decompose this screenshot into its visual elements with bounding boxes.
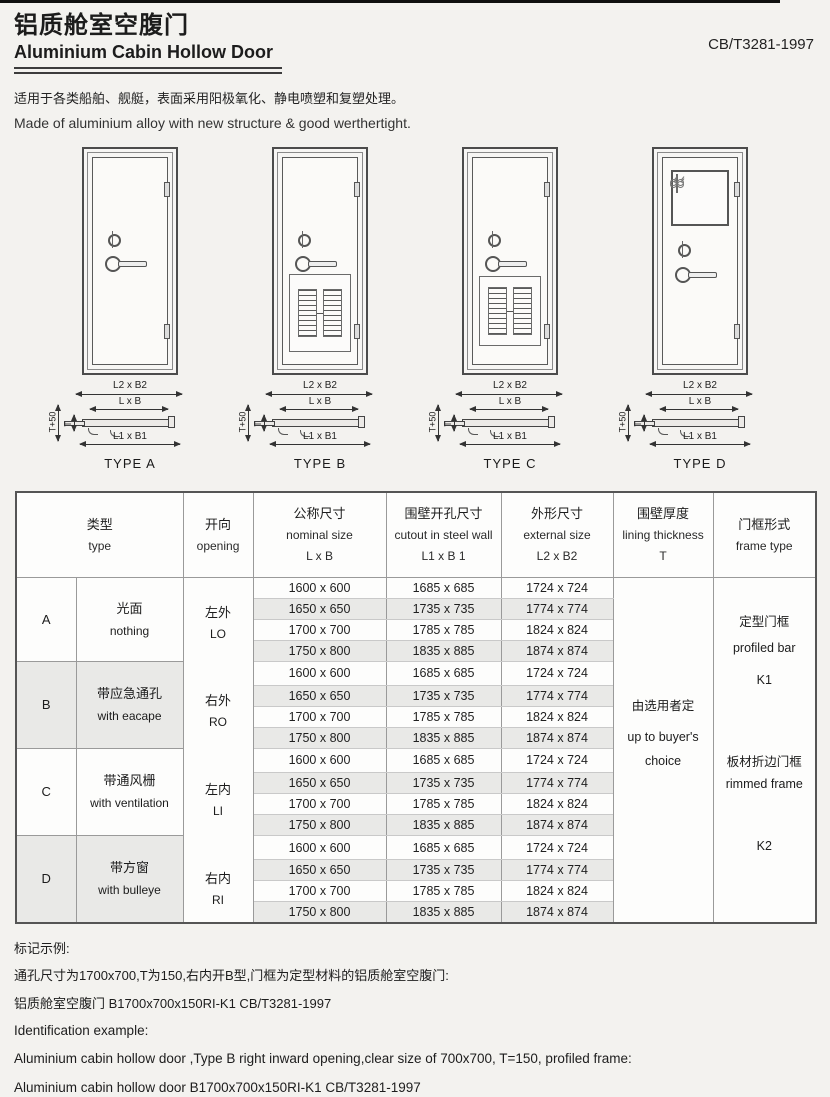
wall-section <box>652 419 740 427</box>
col-external-sub: L2 x B2 <box>502 550 613 562</box>
col-type: 类型 type <box>16 492 183 578</box>
col-opening-en: opening <box>184 540 253 552</box>
cutout-cell: 1835 x 885 <box>386 902 501 923</box>
cutout-cell: 1685 x 685 <box>386 661 501 685</box>
nominal-cell: 1650 x 650 <box>253 598 386 619</box>
description-en: Made of aluminium alloy with new structu… <box>14 115 816 131</box>
cutout-cell: 1785 x 785 <box>386 881 501 902</box>
nominal-cell: 1650 x 650 <box>253 772 386 793</box>
cutout-cell: 1785 x 785 <box>386 793 501 814</box>
page-title-en: Aluminium Cabin Hollow Door <box>14 42 816 63</box>
nominal-cell: 1600 x 600 <box>253 748 386 772</box>
external-cell: 1724 x 724 <box>501 577 613 598</box>
example-line1-zh: 通孔尺寸为1700x700,T为150,右内开B型,门框为定型材料的铝质舱室空腹… <box>14 967 816 985</box>
dim-t: T <box>443 421 453 427</box>
dim-external: L2 x B2 <box>683 380 717 391</box>
opening-li: 左内LI <box>184 783 253 817</box>
col-lining-zh: 围壁厚度 <box>614 507 713 520</box>
door-knob-icon <box>488 234 501 247</box>
col-frame-zh: 门框形式 <box>714 518 816 531</box>
dim-cutout: L1 x B1 <box>493 431 527 442</box>
hinge-icon <box>164 324 170 339</box>
col-type-zh: 类型 <box>17 518 183 531</box>
col-cutout-zh: 围壁开孔尺寸 <box>387 507 501 520</box>
ventilation-louver-panel <box>479 276 541 346</box>
title-divider <box>14 67 282 74</box>
dim-t50: T+50 <box>617 411 627 432</box>
hinge-icon <box>164 182 170 197</box>
cutout-cell: 1785 x 785 <box>386 706 501 727</box>
type-label: TYPE B <box>294 456 346 471</box>
type-label: TYPE C <box>484 456 537 471</box>
opening-lo: 左外LO <box>184 606 253 640</box>
col-frame: 门框形式 frame type <box>713 492 816 578</box>
nominal-cell: 1700 x 700 <box>253 619 386 640</box>
dim-cutout: L1 x B1 <box>113 431 147 442</box>
nominal-cell: 1700 x 700 <box>253 793 386 814</box>
door-drawing <box>82 147 178 375</box>
cutout-cell: 1735 x 735 <box>386 685 501 706</box>
hinge-icon <box>544 182 550 197</box>
spec-table: 类型 type 开向 opening 公称尺寸 nominal size L x… <box>15 491 817 924</box>
type-desc-en: nothing <box>77 625 183 637</box>
nominal-cell: 1650 x 650 <box>253 685 386 706</box>
external-cell: 1824 x 824 <box>501 706 613 727</box>
door-figure-type-d: L2 x B2 L x B T+50 T L1 x B1 TYPE D <box>605 147 795 469</box>
square-window <box>671 170 729 226</box>
page-title-zh: 铝质舱室空腹门 <box>14 12 816 40</box>
dimension-diagram: L2 x B2 L x B T+50 T L1 x B1 TYPE C <box>434 381 586 469</box>
external-cell: 1774 x 774 <box>501 598 613 619</box>
col-nominal-en: nominal size <box>254 529 386 541</box>
example-line2-zh: 铝质舱室空腹门 B1700x700x150RI-K1 CB/T3281-1997 <box>14 995 816 1013</box>
frame-k2: K2 <box>714 840 816 853</box>
cutout-cell: 1685 x 685 <box>386 577 501 598</box>
dim-line-t <box>644 415 645 431</box>
nominal-cell: 1600 x 600 <box>253 835 386 859</box>
wall-notch <box>738 416 745 428</box>
dim-line-t50 <box>58 405 59 441</box>
external-cell: 1774 x 774 <box>501 685 613 706</box>
col-external-en: external size <box>502 529 613 541</box>
wall-section <box>272 419 360 427</box>
dim-line-t50 <box>248 405 249 441</box>
type-letter: A <box>16 577 76 661</box>
frame-rimmed-zh: 板材折边门框 <box>714 756 816 769</box>
door-knob-icon <box>108 234 121 247</box>
nominal-cell: 1600 x 600 <box>253 661 386 685</box>
dim-line-external <box>456 394 562 395</box>
door-handle-icon <box>675 267 691 283</box>
opening-ri: 右内RI <box>184 872 253 906</box>
external-cell: 1824 x 824 <box>501 793 613 814</box>
cutout-cell: 1835 x 885 <box>386 727 501 748</box>
gasket-hook <box>658 428 668 435</box>
door-diagrams: L2 x B2 L x B T+50 T L1 x B1 TYPE A <box>0 147 830 469</box>
header-row: 类型 type 开向 opening 公称尺寸 nominal size L x… <box>16 492 816 578</box>
type-letter: B <box>16 661 76 748</box>
wall-section <box>462 419 550 427</box>
example-line1-en: Aluminium cabin hollow door ,Type B righ… <box>14 1050 816 1068</box>
hinge-icon <box>544 324 550 339</box>
type-desc-zh: 带应急通孔 <box>77 687 183 700</box>
dim-nominal: L x B <box>309 396 331 407</box>
hinge-icon <box>354 182 360 197</box>
external-cell: 1874 x 874 <box>501 814 613 835</box>
col-frame-en: frame type <box>714 540 816 552</box>
lining-en1: up to buyer's <box>614 731 713 744</box>
door-drawing <box>272 147 368 375</box>
cutout-cell: 1685 x 685 <box>386 748 501 772</box>
dimension-diagram: L2 x B2 L x B T+50 T L1 x B1 TYPE B <box>244 381 396 469</box>
nominal-cell: 1700 x 700 <box>253 706 386 727</box>
dim-line-external <box>646 394 752 395</box>
external-cell: 1774 x 774 <box>501 860 613 881</box>
gasket-hook <box>468 428 478 435</box>
door-drawing <box>652 147 748 375</box>
lining-en2: choice <box>614 755 713 768</box>
dim-line-t <box>264 415 265 431</box>
gasket-hook <box>278 428 288 435</box>
identification-example: 标记示例: 通孔尺寸为1700x700,T为150,右内开B型,门框为定型材料的… <box>14 940 816 1097</box>
col-type-en: type <box>17 540 183 552</box>
col-nominal: 公称尺寸 nominal size L x B <box>253 492 386 578</box>
col-cutout-en: cutout in steel wall <box>387 529 501 541</box>
door-handle-icon <box>105 256 121 272</box>
cutout-cell: 1835 x 885 <box>386 814 501 835</box>
frame-cell: 定型门框 profiled bar K1 板材折边门框 rimmed frame… <box>713 577 816 923</box>
nominal-cell: 1600 x 600 <box>253 577 386 598</box>
nominal-cell: 1750 x 800 <box>253 640 386 661</box>
dim-cutout: L1 x B1 <box>303 431 337 442</box>
opening-ro: 右外RO <box>184 694 253 728</box>
col-lining-en: lining thickness <box>614 529 713 541</box>
dim-t: T <box>633 421 643 427</box>
lining-zh: 由选用者定 <box>614 700 713 713</box>
dim-line-external <box>76 394 182 395</box>
col-opening-zh: 开向 <box>184 518 253 531</box>
dimension-diagram: L2 x B2 L x B T+50 T L1 x B1 TYPE D <box>624 381 776 469</box>
frame-k1: K1 <box>714 674 816 687</box>
type-desc-zh: 带方窗 <box>77 861 183 874</box>
type-desc-en: with bulleye <box>77 884 183 896</box>
type-desc: 带方窗 with bulleye <box>76 835 183 922</box>
col-opening: 开向 opening <box>183 492 253 578</box>
dim-t: T <box>253 421 263 427</box>
type-letter: C <box>16 748 76 835</box>
cutout-cell: 1835 x 885 <box>386 640 501 661</box>
external-cell: 1874 x 874 <box>501 727 613 748</box>
spec-table-wrap: 类型 type 开向 opening 公称尺寸 nominal size L x… <box>15 491 815 924</box>
door-figure-type-a: L2 x B2 L x B T+50 T L1 x B1 TYPE A <box>35 147 225 469</box>
frame-profiled-zh: 定型门框 <box>714 616 816 629</box>
dim-line-t50 <box>438 405 439 441</box>
example-title-zh: 标记示例: <box>14 940 816 958</box>
nominal-cell: 1750 x 800 <box>253 727 386 748</box>
type-desc-zh: 带通风栅 <box>77 774 183 787</box>
type-desc: 光面 nothing <box>76 577 183 661</box>
external-cell: 1724 x 724 <box>501 835 613 859</box>
type-label: TYPE A <box>104 456 156 471</box>
page-header: 铝质舱室空腹门 Aluminium Cabin Hollow Door CB/T… <box>0 0 830 131</box>
frame-rimmed-en: rimmed frame <box>714 778 816 791</box>
dim-line-cutout <box>270 444 370 445</box>
dimension-diagram: L2 x B2 L x B T+50 T L1 x B1 TYPE A <box>54 381 206 469</box>
door-figure-type-b: L2 x B2 L x B T+50 T L1 x B1 TYPE B <box>225 147 415 469</box>
external-cell: 1824 x 824 <box>501 619 613 640</box>
door-handle-icon <box>295 256 311 272</box>
door-handle-icon <box>485 256 501 272</box>
lining-cell: 由选用者定 up to buyer's choice <box>613 577 713 923</box>
opening-cell: 左外LO 右外RO 左内LI 右内RI <box>183 577 253 923</box>
nominal-cell: 1750 x 800 <box>253 902 386 923</box>
door-knob-icon <box>298 234 311 247</box>
nominal-cell: 1700 x 700 <box>253 881 386 902</box>
type-desc: 带通风栅 with ventilation <box>76 748 183 835</box>
dim-t50: T+50 <box>427 411 437 432</box>
type-desc-en: with eacape <box>77 710 183 722</box>
dim-nominal: L x B <box>119 396 141 407</box>
nominal-cell: 1650 x 650 <box>253 860 386 881</box>
cutout-cell: 1685 x 685 <box>386 835 501 859</box>
dim-external: L2 x B2 <box>303 380 337 391</box>
dim-cutout: L1 x B1 <box>683 431 717 442</box>
col-lining: 围壁厚度 lining thickness T <box>613 492 713 578</box>
cutout-cell: 1735 x 735 <box>386 772 501 793</box>
screw-icon <box>670 181 677 188</box>
cutout-cell: 1785 x 785 <box>386 619 501 640</box>
type-desc: 带应急通孔 with eacape <box>76 661 183 748</box>
type-desc-zh: 光面 <box>77 602 183 615</box>
external-cell: 1824 x 824 <box>501 881 613 902</box>
type-letter: D <box>16 835 76 922</box>
external-cell: 1774 x 774 <box>501 772 613 793</box>
type-desc-en: with ventilation <box>77 797 183 809</box>
col-external: 外形尺寸 external size L2 x B2 <box>501 492 613 578</box>
dim-line-nominal <box>90 409 168 410</box>
wall-section <box>82 419 170 427</box>
type-label: TYPE D <box>674 456 727 471</box>
col-lining-sub: T <box>614 550 713 562</box>
col-nominal-sub: L x B <box>254 550 386 562</box>
dim-line-t50 <box>628 405 629 441</box>
dim-line-external <box>266 394 372 395</box>
door-knob-icon <box>678 244 691 257</box>
standard-number: CB/T3281-1997 <box>708 36 814 53</box>
hinge-icon <box>734 324 740 339</box>
hinge-icon <box>354 324 360 339</box>
dim-line-cutout <box>80 444 180 445</box>
escape-louver-panel <box>289 274 351 352</box>
description-zh: 适用于各类船舶、舰艇，表面采用阳极氧化、静电喷塑和复塑处理。 <box>14 88 816 107</box>
dim-external: L2 x B2 <box>493 380 527 391</box>
col-cutout: 围壁开孔尺寸 cutout in steel wall L1 x B 1 <box>386 492 501 578</box>
example-line2-en: Aluminium cabin hollow door B1700x700x15… <box>14 1079 816 1097</box>
dim-line-nominal <box>280 409 358 410</box>
col-nominal-zh: 公称尺寸 <box>254 507 386 520</box>
example-title-en: Identification example: <box>14 1022 816 1040</box>
external-cell: 1874 x 874 <box>501 640 613 661</box>
wall-notch <box>358 416 365 428</box>
dim-line-cutout <box>460 444 560 445</box>
cutout-cell: 1735 x 735 <box>386 598 501 619</box>
wall-notch <box>548 416 555 428</box>
frame-profiled-en: profiled bar <box>714 642 816 655</box>
dim-line-cutout <box>650 444 750 445</box>
dim-line-t <box>74 415 75 431</box>
external-cell: 1724 x 724 <box>501 748 613 772</box>
external-cell: 1874 x 874 <box>501 902 613 923</box>
wall-notch <box>168 416 175 428</box>
screw-icon <box>677 181 684 188</box>
dim-t50: T+50 <box>237 411 247 432</box>
dim-nominal: L x B <box>689 396 711 407</box>
col-external-zh: 外形尺寸 <box>502 507 613 520</box>
gasket-hook <box>88 428 98 435</box>
dim-line-nominal <box>470 409 548 410</box>
dim-line-t <box>454 415 455 431</box>
nominal-cell: 1750 x 800 <box>253 814 386 835</box>
dim-nominal: L x B <box>499 396 521 407</box>
dim-external: L2 x B2 <box>113 380 147 391</box>
hinge-icon <box>734 182 740 197</box>
dim-line-nominal <box>660 409 738 410</box>
size-row: A 光面 nothing 左外LO 右外RO 左内LI 右内RI 1600 x … <box>16 577 816 598</box>
dim-t50: T+50 <box>47 411 57 432</box>
cutout-cell: 1735 x 735 <box>386 860 501 881</box>
door-drawing <box>462 147 558 375</box>
dim-t: T <box>63 421 73 427</box>
external-cell: 1724 x 724 <box>501 661 613 685</box>
col-cutout-sub: L1 x B 1 <box>387 550 501 562</box>
door-figure-type-c: L2 x B2 L x B T+50 T L1 x B1 TYPE C <box>415 147 605 469</box>
